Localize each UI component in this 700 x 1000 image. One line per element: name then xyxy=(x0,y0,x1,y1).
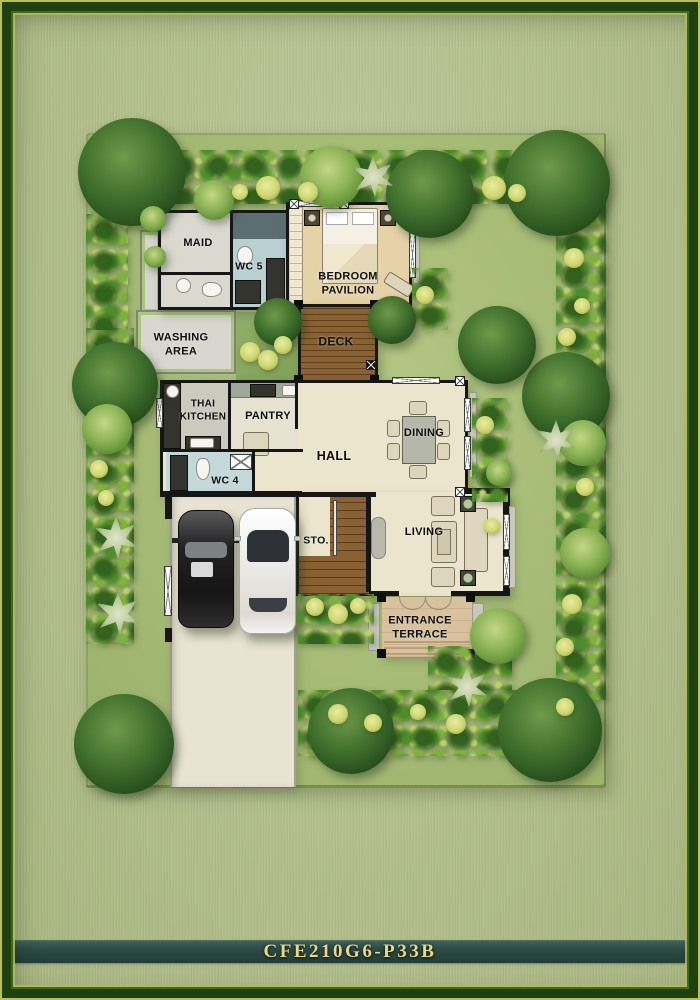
terrace-column xyxy=(377,649,386,658)
dining-window xyxy=(464,436,471,470)
room-label-pantry: PANTRY xyxy=(245,410,291,424)
nightstand xyxy=(380,210,396,226)
maid-bath-toilet xyxy=(202,282,222,297)
pantry-sink xyxy=(282,385,296,396)
room-label-maid: MAID xyxy=(183,237,212,251)
bedroom-wardrobe xyxy=(290,206,303,304)
car-dark-windshield xyxy=(185,542,227,558)
car-white-windshield xyxy=(247,530,289,562)
plant-pot xyxy=(460,496,476,512)
bed-pillow xyxy=(326,212,348,225)
column-marker xyxy=(405,199,415,209)
car-white xyxy=(239,508,296,634)
dining-window xyxy=(464,398,471,432)
deck-column xyxy=(294,300,303,309)
sofa xyxy=(464,508,488,572)
armchair xyxy=(431,496,455,516)
room-label-bedroom-pavilion: BEDROOMPAVILION xyxy=(318,270,378,298)
car-mirror xyxy=(234,536,241,541)
room-label-storage: STO. xyxy=(303,534,329,547)
living-window xyxy=(503,556,510,586)
column-marker-dark xyxy=(366,360,376,370)
pantry-hall-wall xyxy=(295,383,298,429)
living-window xyxy=(503,514,510,550)
wc5-shower xyxy=(233,213,287,239)
room-label-dining: DINING xyxy=(404,427,444,441)
room-label-washing-area: WASHINGAREA xyxy=(154,331,209,359)
stove-burners xyxy=(166,402,178,418)
courtyard-garden xyxy=(236,312,298,382)
wc4-right-wall xyxy=(252,449,255,494)
column-marker xyxy=(455,376,465,386)
car-mirror xyxy=(294,536,301,541)
column-marker xyxy=(289,199,299,209)
pantry-cooktop xyxy=(250,384,276,397)
maid-bath-sink xyxy=(176,278,191,293)
dining-chair xyxy=(437,443,450,460)
dining-top-window xyxy=(392,377,440,384)
kitchen-sink xyxy=(190,438,214,448)
terrace-column xyxy=(466,593,475,602)
armchair xyxy=(431,567,455,587)
nightstand xyxy=(304,210,320,226)
garage-wall-stub xyxy=(165,628,172,642)
house-plan: MAID WC 5 BEDROOMPAVILION WASHINGAREA DE… xyxy=(0,0,700,1000)
kitchen-window xyxy=(156,398,163,428)
room-label-thai-kitchen: THAIKITCHEN xyxy=(180,399,227,424)
dining-chair xyxy=(409,465,427,479)
room-label-deck: DECK xyxy=(318,335,353,350)
car-mirror xyxy=(172,538,179,543)
bed-pillow xyxy=(352,212,374,225)
wc4-toilet xyxy=(196,458,210,480)
title-plate-band: CFE210G6-P33B xyxy=(11,940,689,963)
wc4-shower-tray xyxy=(230,454,252,470)
dining-chair xyxy=(409,401,427,415)
bedroom-top-window xyxy=(298,200,326,207)
wc5-vanity xyxy=(235,280,261,304)
dining-chair xyxy=(387,420,400,437)
living-bottom-wall-right xyxy=(451,591,510,596)
plan-code: CFE210G6-P33B xyxy=(11,940,689,963)
terrace-column xyxy=(377,593,386,602)
stairs-lower xyxy=(299,556,369,594)
room-label-hall: HALL xyxy=(317,449,352,465)
site-plan-image: MAID WC 5 BEDROOMPAVILION WASHINGAREA DE… xyxy=(0,0,700,1000)
room-label-living: LIVING xyxy=(405,526,443,540)
room-label-wc5: WC 5 xyxy=(235,260,262,273)
garage-wall-stub xyxy=(165,495,172,519)
car-white-rear-glass xyxy=(249,598,287,612)
plant-pot xyxy=(460,570,476,586)
dining-chair xyxy=(387,443,400,460)
terrace-side-pad xyxy=(368,603,380,651)
deck-column xyxy=(370,300,379,309)
washing-machine xyxy=(166,385,179,398)
column-marker xyxy=(455,487,465,497)
stair-railing xyxy=(333,500,337,556)
room-label-entrance-terrace: ENTRANCETERRACE xyxy=(388,614,452,642)
column-marker xyxy=(339,199,349,209)
maid-partition-wall xyxy=(161,272,230,275)
car-dark-roof-plate xyxy=(191,562,213,577)
shoe-cabinet xyxy=(371,517,386,559)
wc4-vanity xyxy=(170,455,188,491)
room-label-wc4: WC 4 xyxy=(211,474,238,487)
bedroom-window xyxy=(409,232,416,278)
terrace-side-pad xyxy=(472,603,484,651)
living-window-sill xyxy=(509,506,516,588)
terrace-column xyxy=(466,649,475,658)
garage-window xyxy=(164,566,172,616)
wc5-cabinet xyxy=(266,258,285,304)
terrace-steps xyxy=(384,641,470,655)
